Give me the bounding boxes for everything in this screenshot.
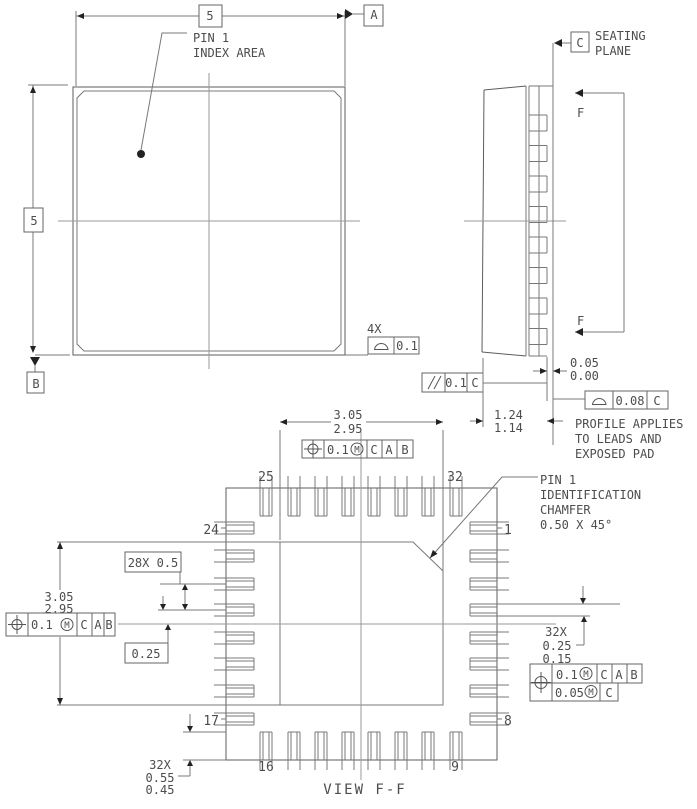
profile-note-line2: TO LEADS AND [575, 432, 662, 446]
datum-c-arrow [554, 39, 562, 47]
datum-a-label: A [370, 8, 378, 22]
bottom-view: 3.05 2.95 0.1 M C A B 3.05 2.95 [6, 408, 642, 798]
height-min: 1.14 [494, 421, 523, 435]
dim-arrow [57, 698, 63, 705]
pitch-value: 28X 0.5 [128, 556, 179, 570]
svg-text:M: M [354, 446, 360, 456]
chamfer-note-line4: 0.50 X 45° [540, 518, 612, 532]
dim-arrow [160, 604, 166, 610]
svg-text:B: B [105, 618, 112, 632]
pin-label-25: 25 [258, 470, 274, 485]
svg-text:A: A [94, 618, 102, 632]
chamfer-note-line3: CHAMFER [540, 503, 591, 517]
datum-b-triangle [30, 357, 40, 366]
dim-arrow [57, 542, 63, 549]
dim-arrow [187, 760, 193, 766]
svg-text:B: B [630, 668, 637, 682]
profile-note-line1: PROFILE APPLIES [575, 417, 683, 431]
section-arrow [575, 89, 583, 97]
lead-width-max: 0.25 [543, 639, 572, 653]
svg-text:B: B [401, 443, 408, 457]
lead-width-count: 32X [545, 625, 567, 639]
dim-arrow [540, 368, 547, 374]
dim-arrow [77, 13, 84, 19]
dim-arrow [30, 346, 36, 353]
profile-tolerance: 0.08 [616, 394, 645, 408]
parallelism-icon [428, 376, 435, 389]
dim-arrow [165, 624, 171, 630]
composite-position-frame: 0.1 M C A B 0.05 M C [530, 664, 642, 701]
pin-label-24: 24 [203, 523, 219, 538]
dim-arrow [581, 616, 587, 622]
lead-length-min: 0.45 [146, 783, 175, 797]
pin1-index-dot [137, 150, 145, 158]
standoff-max: 0.05 [570, 356, 599, 370]
lead-profile-tolerance: 0.1 [396, 339, 418, 353]
offset-value: 0.25 [132, 647, 161, 661]
top-view: PIN 1 INDEX AREA 5 A 5 B 4X 0.1 [24, 5, 547, 393]
dim-arrow [436, 419, 443, 425]
parallelism-icon [434, 376, 441, 389]
pin-label-9: 9 [451, 760, 459, 775]
seating-plane-label-1: SEATING [595, 29, 646, 43]
pin1-note-line2: INDEX AREA [193, 46, 266, 60]
profile-of-surface-icon [593, 399, 607, 405]
dim-arrow [580, 598, 586, 604]
section-letter-top: F [577, 106, 584, 120]
dim-arrow [547, 418, 554, 424]
chamfer-note-line2: IDENTIFICATION [540, 488, 641, 502]
chamfer-note-line1: PIN 1 [540, 473, 576, 487]
dim-arrow [553, 368, 560, 374]
standoff-min: 0.00 [570, 369, 599, 383]
epad-width-min: 2.95 [334, 422, 363, 436]
position-frame-left: 0.1 M C A B [6, 613, 115, 636]
svg-text:A: A [385, 443, 393, 457]
svg-text:M: M [583, 670, 589, 680]
side-view: C SEATING PLANE F F 0.05 0.00 1.24 1.14 … [464, 29, 683, 461]
frame-left-tol: 0.1 [31, 618, 53, 632]
section-letter-bottom: F [577, 314, 584, 328]
pin-label-8: 8 [504, 714, 512, 729]
parallelism-tolerance: 0.1 [445, 376, 467, 390]
seating-plane-label-2: PLANE [595, 44, 631, 58]
dim-arrow [30, 86, 36, 93]
drawing-canvas: PIN 1 INDEX AREA 5 A 5 B 4X 0.1 [0, 0, 697, 809]
view-title: VIEW F-F [323, 782, 406, 798]
pin-label-16: 16 [258, 760, 274, 775]
pin-label-17: 17 [203, 714, 219, 729]
parallelism-datum: C [471, 376, 478, 390]
dim-arrow [280, 419, 287, 425]
epad-height-min: 2.95 [45, 602, 74, 616]
lead-profile-count: 4X [367, 322, 382, 336]
profile-note-line3: EXPOSED PAD [575, 447, 654, 461]
pin1-note-line1: PIN 1 [193, 31, 229, 45]
section-arrow [575, 328, 583, 336]
dim-arrow [182, 584, 188, 590]
svg-text:C: C [605, 686, 612, 700]
svg-text:A: A [615, 668, 623, 682]
frame-top-tol: 0.1 [327, 443, 349, 457]
profile-of-surface-icon [375, 344, 389, 350]
epad-width-max: 3.05 [334, 408, 363, 422]
position-frame-top: 0.1 M C A B [302, 440, 413, 458]
datum-b-label: B [32, 377, 39, 391]
svg-text:C: C [370, 443, 377, 457]
chamfer-leader [430, 477, 502, 558]
svg-text:0.1: 0.1 [556, 668, 578, 682]
dim-width: 5 [206, 9, 213, 23]
pin-label-32: 32 [447, 470, 463, 485]
dim-height: 5 [30, 214, 37, 228]
package-outline-drawing: PIN 1 INDEX AREA 5 A 5 B 4X 0.1 [0, 0, 697, 809]
svg-text:C: C [600, 668, 607, 682]
svg-text:C: C [80, 618, 87, 632]
height-max: 1.24 [494, 408, 523, 422]
datum-a-triangle [345, 9, 353, 19]
svg-text:M: M [588, 688, 594, 698]
side-lead-profiles [529, 115, 547, 345]
dim-arrow [476, 418, 483, 424]
datum-c-label: C [576, 36, 583, 50]
svg-text:0.05: 0.05 [555, 686, 584, 700]
profile-datum: C [653, 394, 660, 408]
dim-arrow [337, 13, 344, 19]
dim-arrow [182, 604, 188, 610]
dim-arrow [187, 726, 193, 732]
svg-text:M: M [64, 621, 70, 631]
pin-label-1: 1 [504, 523, 512, 538]
lead-length-count: 32X [149, 758, 171, 772]
